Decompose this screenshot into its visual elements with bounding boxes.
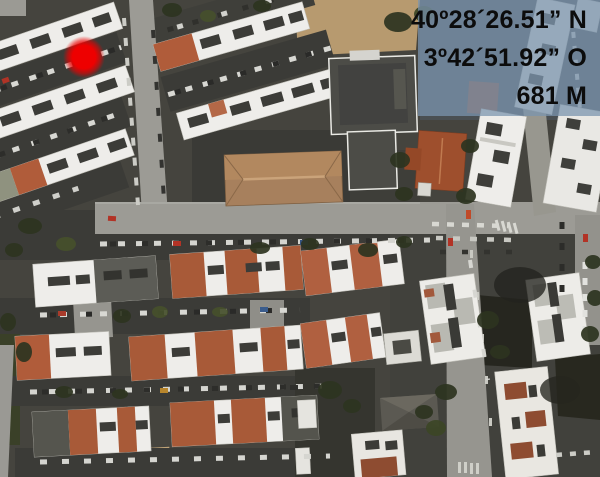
satellite-view: 40º28´26.51” N 3º42´51.92” O 681 M xyxy=(0,0,600,477)
location-marker xyxy=(63,36,105,78)
altitude-text: 681 M xyxy=(517,77,587,115)
longitude-text: 3º42´51.92” O xyxy=(424,39,587,77)
gps-overlay-panel: 40º28´26.51” N 3º42´51.92” O 681 M xyxy=(418,0,600,116)
latitude-text: 40º28´26.51” N xyxy=(411,1,587,39)
school-building xyxy=(224,151,343,206)
